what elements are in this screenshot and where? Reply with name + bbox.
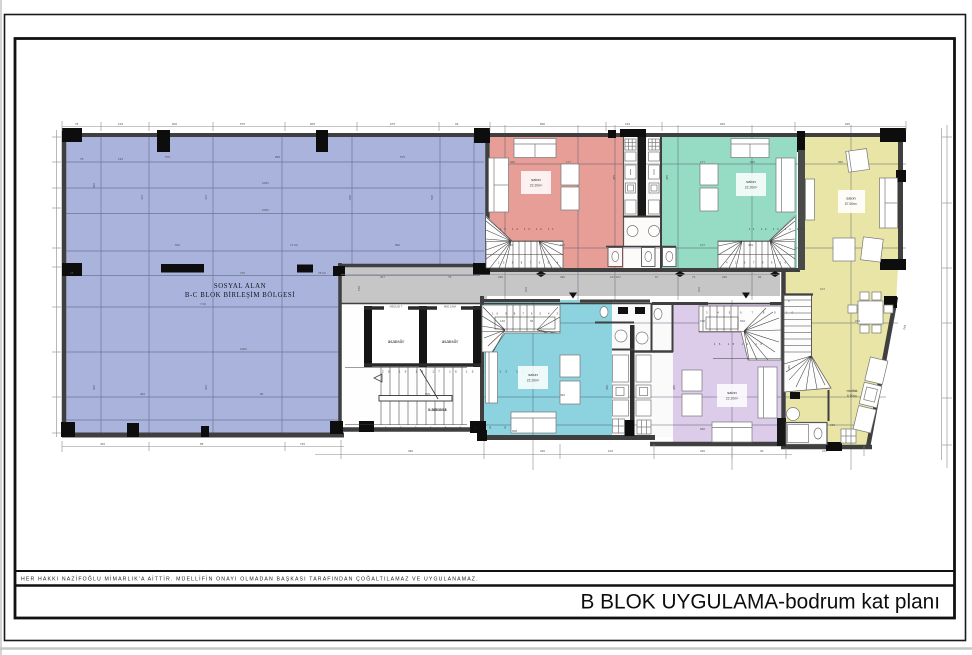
svg-text:385: 385 [612,175,616,180]
svg-text:salon: salon [528,372,538,377]
svg-text:73: 73 [692,275,696,279]
svg-text:193: 193 [118,157,123,161]
svg-text:16 15 14 13: 16 15 14 13 [714,342,765,346]
svg-text:605: 605 [92,183,96,188]
svg-text:243: 243 [855,319,860,323]
svg-text:925: 925 [720,122,725,126]
svg-text:57.50m²: 57.50m² [845,202,858,206]
svg-text:4 5 6 7 8 9 10: 4 5 6 7 8 9 10 [726,261,789,265]
svg-text:107: 107 [820,287,825,291]
svg-text:575: 575 [165,155,170,159]
svg-text:asansör: asansör [442,339,459,345]
svg-text:66: 66 [530,319,534,323]
svg-text:460: 460 [560,393,565,397]
svg-text:193: 193 [118,122,123,126]
svg-text:575: 575 [240,122,245,126]
svg-text:22.20m²: 22.20m² [530,184,543,188]
svg-text:150: 150 [700,319,705,323]
svg-text:660: 660 [750,160,755,164]
svg-text:290: 290 [722,275,727,279]
svg-text:150: 150 [357,286,361,291]
svg-text:22.20m²: 22.20m² [745,186,758,190]
svg-text:75: 75 [448,275,452,279]
svg-text:M50/L50 T: M50/L50 T [390,305,403,309]
svg-text:290: 290 [498,275,503,279]
svg-text:78 93: 78 93 [318,271,326,275]
svg-text:575: 575 [400,155,405,159]
svg-text:7.00: 7.00 [200,302,206,306]
svg-text:390: 390 [408,449,413,453]
svg-text:608: 608 [512,429,517,433]
svg-text:606: 606 [172,122,177,126]
svg-text:272: 272 [822,449,827,453]
svg-text:347: 347 [380,275,385,279]
svg-text:960: 960 [838,160,843,164]
svg-text:85: 85 [200,442,204,446]
svg-text:413: 413 [204,195,208,200]
svg-text:925: 925 [845,122,850,126]
svg-text:mutfak: mutfak [847,389,858,393]
svg-text:11 12 13 14 15: 11 12 13 14 15 [749,227,805,231]
svg-text:605: 605 [92,385,96,390]
svg-text:385: 385 [665,175,669,180]
svg-text:489: 489 [748,243,753,247]
svg-text:36: 36 [760,449,764,453]
svg-text:1084: 1084 [262,208,269,212]
svg-text:605: 605 [310,122,315,126]
svg-text:M50 L/MA: M50 L/MA [444,305,456,309]
svg-text:385: 385 [672,385,676,390]
svg-text:505: 505 [425,392,430,396]
svg-text:380: 380 [605,385,609,390]
svg-text:B BLOK UYGULAMA-bodrum kat pla: B BLOK UYGULAMA-bodrum kat planı [581,591,940,614]
svg-text:193: 193 [625,122,630,126]
svg-text:10 9 8 7 6 5 4: 10 9 8 7 6 5 4 [498,261,561,265]
svg-text:489: 489 [508,243,513,247]
svg-text:1084: 1084 [240,347,247,351]
svg-text:602: 602 [175,243,180,247]
svg-text:SOSYAL ALAN: SOSYAL ALAN [214,283,266,290]
svg-text:salon: salon [746,179,756,184]
svg-text:B-C BLOK BİRLEŞİM BÖLGESİ: B-C BLOK BİRLEŞİM BÖLGESİ [185,292,295,299]
svg-text:545: 545 [430,195,434,200]
svg-text:78: 78 [70,271,74,275]
svg-text:102: 102 [524,287,528,292]
svg-text:446: 446 [100,442,105,446]
svg-text:102: 102 [608,449,613,453]
svg-text:94: 94 [758,275,762,279]
svg-text:22.20m²: 22.20m² [527,379,540,383]
svg-text:102: 102 [697,287,701,292]
svg-text:675: 675 [390,122,395,126]
svg-text:HER HAKKI NAZİFOĞLU MİMARLIK'A: HER HAKKI NAZİFOĞLU MİMARLIK'A AİTTİR. M… [21,576,479,583]
svg-text:330: 330 [540,449,545,453]
svg-text:22.20m²: 22.20m² [726,397,739,401]
svg-text:330: 330 [700,449,705,453]
svg-text:1084: 1084 [262,181,269,185]
svg-text:603: 603 [204,385,208,390]
svg-text:150: 150 [830,423,835,427]
svg-text:545: 545 [348,195,352,200]
svg-text:177: 177 [700,160,705,164]
svg-text:15 14 13 12 11: 15 14 13 12 11 [500,227,556,231]
svg-text:107 107: 107 107 [610,275,621,279]
svg-text:10 9 8 7 6 5 4 3: 10 9 8 7 6 5 4 3 [492,312,561,316]
svg-text:71 93: 71 93 [290,243,298,247]
svg-text:salon: salon [846,196,856,201]
svg-text:X:265/30/18: X:265/30/18 [428,408,447,412]
svg-text:salon: salon [727,390,737,395]
svg-text:67: 67 [655,275,659,279]
svg-text:890: 890 [395,243,400,247]
svg-text:140: 140 [500,319,505,323]
svg-text:390: 390 [560,275,565,279]
svg-text:107: 107 [700,243,705,247]
svg-text:80: 80 [260,392,264,396]
svg-text:3 4 5 6 7 8 9 10: 3 4 5 6 7 8 9 10 [706,310,798,314]
svg-text:6.60m²: 6.60m² [847,394,857,398]
svg-text:413: 413 [140,195,144,200]
svg-text:520: 520 [740,319,745,323]
svg-text:660: 660 [510,160,515,164]
svg-text:177: 177 [566,160,571,164]
svg-text:107: 107 [560,243,565,247]
svg-text:salon: salon [531,177,541,182]
svg-text:890: 890 [540,122,545,126]
svg-text:78: 78 [80,157,84,161]
svg-text:78: 78 [75,122,79,126]
svg-text:asansör: asansör [388,339,405,345]
svg-text:746: 746 [300,442,305,446]
svg-text:462: 462 [140,392,145,396]
svg-text:93: 93 [455,122,459,126]
svg-text:375: 375 [240,271,245,275]
svg-text:660: 660 [700,427,705,431]
svg-text:895: 895 [275,155,280,159]
svg-text:380: 380 [787,365,791,370]
